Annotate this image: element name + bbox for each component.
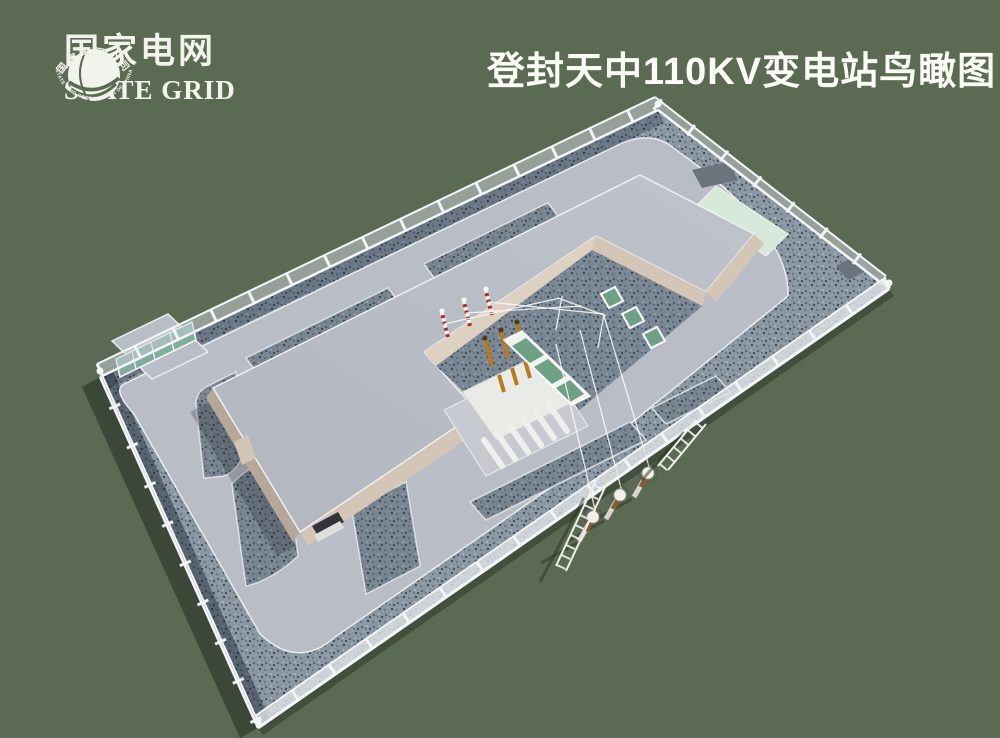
slide: 国家电网公司 STATE GRID CORPORATION OF CHINA 国… [0,0,1000,738]
state-grid-emblem-icon: 国家电网公司 STATE GRID CORPORATION OF CHINA [52,30,136,118]
page-title: 登封天中110KV变电站鸟瞰图 [487,40,997,95]
state-grid-logo: 国家电网公司 STATE GRID CORPORATION OF CHINA 国… [52,30,236,106]
substation-render [0,0,1000,738]
